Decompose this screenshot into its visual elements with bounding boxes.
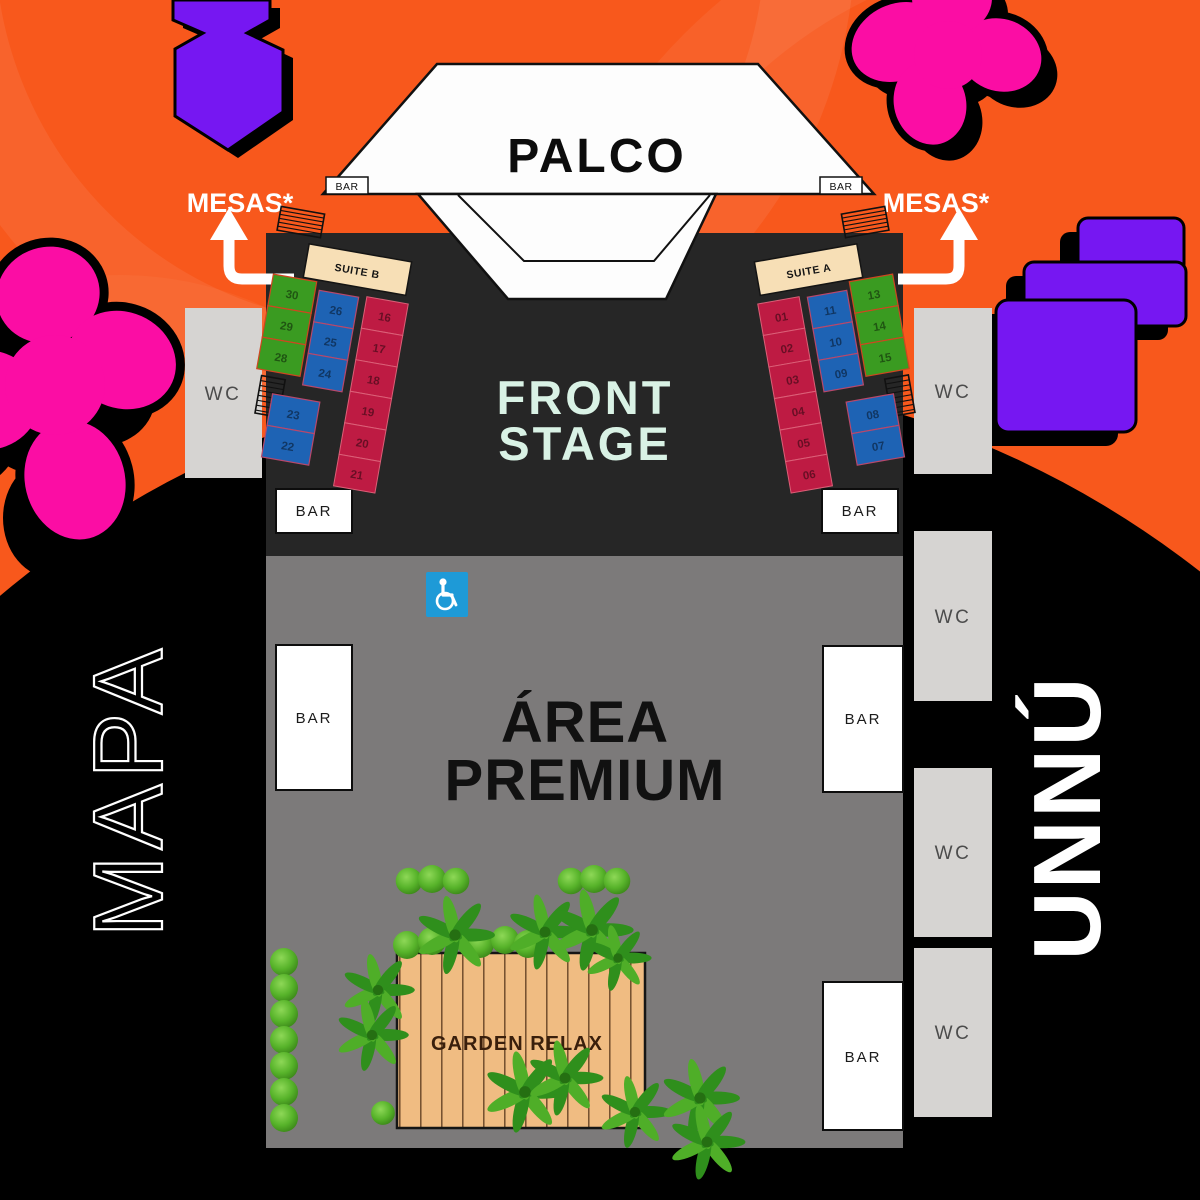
bar-label: BAR	[829, 181, 852, 193]
wc-right-1[interactable]: WC	[914, 308, 992, 474]
bar-label: BAR	[842, 503, 879, 520]
wc-label: WC	[935, 843, 972, 864]
mesas-right-label: MESAS*	[883, 188, 990, 218]
svg-text:09: 09	[834, 368, 849, 382]
premium-label-line1: ÁREA	[501, 690, 669, 755]
wc-label: WC	[935, 1023, 972, 1044]
mesas-left-label: MESAS*	[187, 188, 294, 218]
svg-text:16: 16	[377, 311, 392, 325]
seat-06[interactable]: 06	[786, 454, 833, 493]
svg-text:19: 19	[360, 406, 375, 420]
bar-label: BAR	[845, 1049, 882, 1066]
seat-15[interactable]: 15	[860, 337, 909, 376]
svg-text:17: 17	[372, 343, 387, 357]
svg-text:26: 26	[328, 305, 343, 319]
svg-text:03: 03	[785, 374, 800, 388]
wc-label: WC	[935, 382, 972, 403]
svg-text:20: 20	[355, 437, 370, 451]
front-stage-label-line2: STAGE	[498, 417, 671, 470]
seat-24[interactable]: 24	[303, 353, 348, 391]
svg-text:13: 13	[867, 289, 882, 303]
bar-label: BAR	[845, 711, 882, 728]
brand-vertical-logo: UNNÚ	[1014, 675, 1121, 960]
svg-text:07: 07	[871, 440, 886, 454]
wc-label: WC	[205, 384, 242, 405]
seat-09[interactable]: 09	[818, 353, 863, 391]
stage-bar-left[interactable]: BAR	[326, 177, 368, 194]
wc-left[interactable]: WC	[185, 308, 262, 478]
seat-28[interactable]: 28	[257, 337, 306, 376]
wc-right-2[interactable]: WC	[914, 531, 992, 701]
svg-text:10: 10	[828, 336, 843, 350]
bar-label: BAR	[296, 503, 333, 520]
bar-label: BAR	[335, 181, 358, 193]
svg-text:22: 22	[280, 440, 295, 454]
stage-label: PALCO	[507, 130, 686, 183]
bar-frontstage-right[interactable]: BAR	[822, 489, 898, 533]
svg-text:23: 23	[286, 409, 301, 423]
map-vertical-label: MAPA	[73, 643, 183, 937]
bar-premium-right[interactable]: BAR	[823, 646, 903, 792]
svg-text:02: 02	[780, 343, 795, 357]
stage-bar-right[interactable]: BAR	[820, 177, 862, 194]
wc-right-3[interactable]: WC	[914, 768, 992, 937]
svg-text:06: 06	[802, 469, 817, 483]
venue-map: MAPA UNNÚ	[0, 0, 1200, 1200]
premium-label-line2: PREMIUM	[445, 748, 726, 813]
bar-premium-right-lower[interactable]: BAR	[823, 982, 903, 1130]
wc-label: WC	[935, 607, 972, 628]
wc-right-4[interactable]: WC	[914, 948, 992, 1117]
svg-text:30: 30	[285, 289, 300, 303]
seat-21[interactable]: 21	[334, 454, 381, 493]
bar-frontstage-left[interactable]: BAR	[276, 489, 352, 533]
bar-label: BAR	[296, 710, 333, 727]
wheelchair-icon	[426, 572, 468, 617]
svg-text:29: 29	[279, 320, 294, 334]
bar-premium-left[interactable]: BAR	[276, 645, 352, 790]
